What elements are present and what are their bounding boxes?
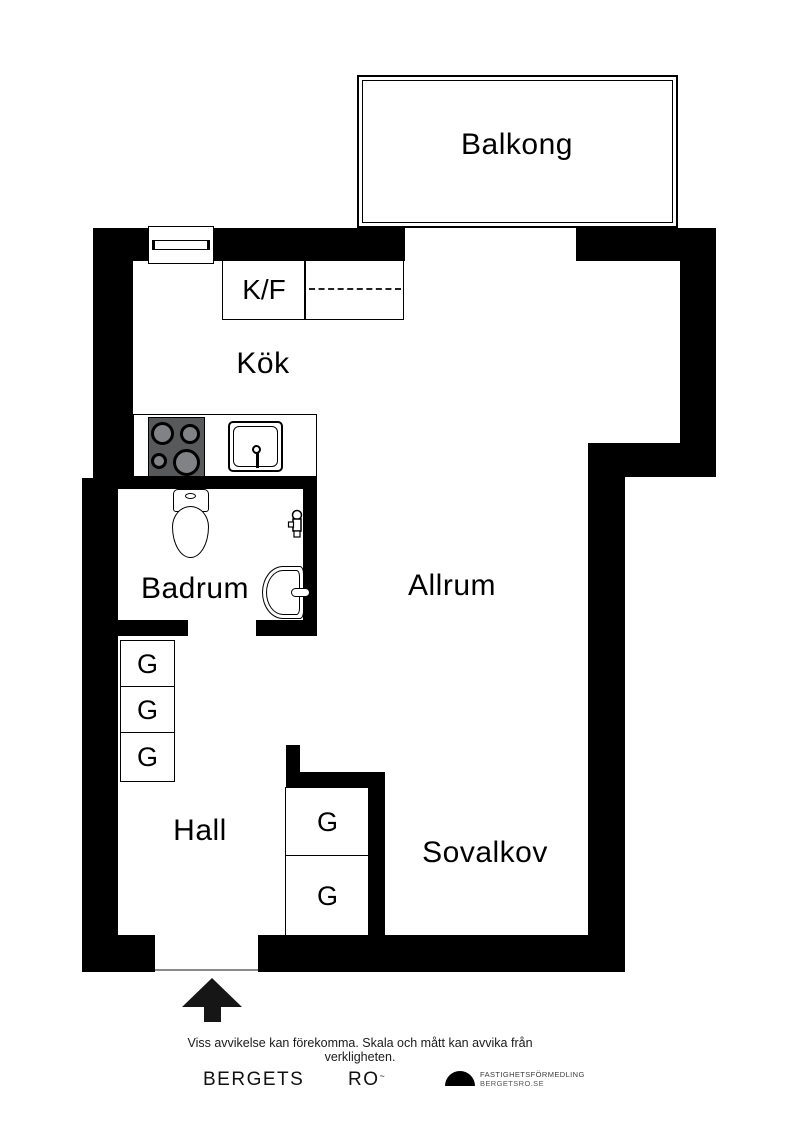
counter-dashed-line — [309, 288, 401, 290]
wardrobe-box: G — [285, 787, 370, 857]
room-label-kok: Kök — [236, 347, 289, 381]
wall-bottom-left — [82, 935, 155, 972]
room-label-hall: Hall — [173, 814, 227, 848]
brand-wordmark-2: RO~ — [348, 1069, 385, 1091]
disclaimer-text: Viss avvikelse kan förekomma. Skala och … — [160, 1036, 560, 1064]
floor-plan: Balkong K/F Kök — [0, 0, 800, 1131]
wardrobe-label: G — [317, 807, 338, 838]
brand-dome-icon — [445, 1071, 475, 1086]
kitchen-sink-icon — [228, 421, 283, 472]
wardrobe-box: G — [120, 732, 175, 782]
stove-icon — [148, 417, 205, 477]
toilet-icon — [172, 489, 210, 558]
wardrobe-label: G — [137, 742, 158, 773]
wall-bathroom-bottom-right — [256, 620, 317, 636]
wall-closet-right — [368, 772, 385, 937]
room-label-badrum: Badrum — [141, 572, 249, 606]
room-label-balkong: Balkong — [461, 128, 573, 162]
wall-bathroom-right — [303, 477, 317, 633]
entrance-arrow-icon — [182, 978, 243, 1022]
entrance-threshold-line — [155, 969, 258, 971]
window-icon — [148, 226, 214, 264]
brand-logo-text: FASTIGHETSFÖRMEDLING BERGETSRO.SE — [480, 1071, 585, 1088]
washbasin-handle-icon — [291, 588, 310, 597]
wardrobe-label: G — [137, 695, 158, 726]
wall-bathroom-bottom-left — [118, 620, 188, 636]
bath-faucet-icon — [287, 509, 306, 539]
brand-word-bergets: BERGETS — [203, 1069, 304, 1090]
brand-wordmark: BERGETS — [203, 1069, 304, 1091]
wall-left-upper — [93, 228, 133, 489]
wall-bottom-right — [258, 935, 625, 972]
wardrobe-label: G — [317, 881, 338, 912]
logo-text-line2: BERGETSRO.SE — [480, 1080, 585, 1089]
wall-right-lower — [588, 443, 625, 972]
wardrobe-box: G — [120, 640, 175, 688]
wall-bathroom-top — [93, 477, 317, 489]
wall-right-upper — [680, 228, 716, 477]
wall-left-lower — [82, 478, 118, 972]
wall-top-left — [93, 228, 405, 261]
wardrobe-label: G — [137, 649, 158, 680]
room-label-sovalkov: Sovalkov — [422, 836, 548, 870]
wardrobe-box: G — [285, 855, 370, 937]
appliance-label-kf: K/F — [223, 261, 305, 319]
room-label-allrum: Allrum — [408, 569, 496, 603]
brand-trademark: ~ — [380, 1071, 385, 1081]
wardrobe-box: G — [120, 686, 175, 734]
brand-word-ro: RO — [348, 1069, 380, 1090]
fridge-freezer-unit: K/F — [222, 260, 404, 320]
